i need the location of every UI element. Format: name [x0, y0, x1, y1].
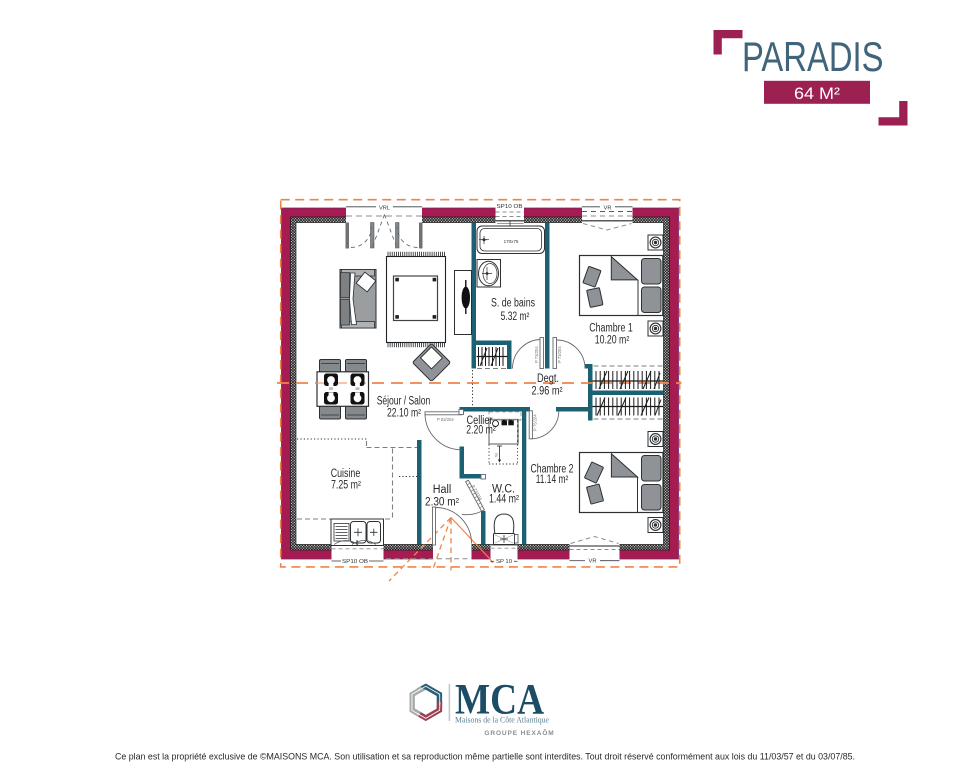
svg-text:22.10 m²: 22.10 m²	[387, 408, 421, 420]
svg-text:GROUPE HEXAÔM: GROUPE HEXAÔM	[484, 728, 554, 737]
svg-text:VRL: VRL	[379, 205, 390, 211]
svg-text:Cuisine: Cuisine	[331, 468, 361, 480]
svg-text:2.96 m²: 2.96 m²	[532, 386, 563, 398]
svg-text:64 M²: 64 M²	[794, 85, 841, 103]
svg-text:2.20 m²: 2.20 m²	[466, 425, 496, 437]
svg-text:170x75: 170x75	[504, 239, 519, 244]
svg-text:P 73/204: P 73/204	[534, 346, 539, 363]
svg-text:SP10 OB: SP10 OB	[497, 204, 523, 210]
svg-text:SP 10: SP 10	[496, 559, 512, 565]
svg-text:PARADIS: PARADIS	[742, 33, 884, 80]
svg-text:S. de bains: S. de bains	[491, 297, 535, 309]
svg-text:P 75/204: P 75/204	[533, 414, 538, 431]
svg-text:11.14 m²: 11.14 m²	[536, 474, 569, 486]
svg-text:5.32 m²: 5.32 m²	[501, 311, 530, 323]
svg-text:Degt.: Degt.	[537, 373, 559, 385]
svg-text:Séjour / Salon: Séjour / Salon	[377, 396, 431, 408]
svg-text:Ce plan est la propriété exclu: Ce plan est la propriété exclusive de ©M…	[115, 752, 855, 762]
svg-text:10.20 m²: 10.20 m²	[595, 334, 630, 346]
svg-text:1.44 m²: 1.44 m²	[489, 494, 519, 506]
svg-text:VR: VR	[589, 559, 597, 565]
svg-text:Chambre 1: Chambre 1	[589, 323, 633, 335]
svg-text:7.25 m²: 7.25 m²	[331, 480, 361, 492]
svg-text:SI: SI	[494, 453, 499, 457]
svg-text:Maisons de la Côte Atlantique: Maisons de la Côte Atlantique	[455, 716, 549, 725]
svg-text:VR: VR	[604, 205, 612, 211]
svg-text:SP10 OB: SP10 OB	[342, 559, 368, 565]
svg-text:2.30 m²: 2.30 m²	[425, 497, 459, 509]
svg-text:P 83/204: P 83/204	[437, 417, 454, 422]
svg-text:Hall: Hall	[433, 484, 452, 496]
svg-text:P 73/204: P 73/204	[557, 346, 562, 363]
